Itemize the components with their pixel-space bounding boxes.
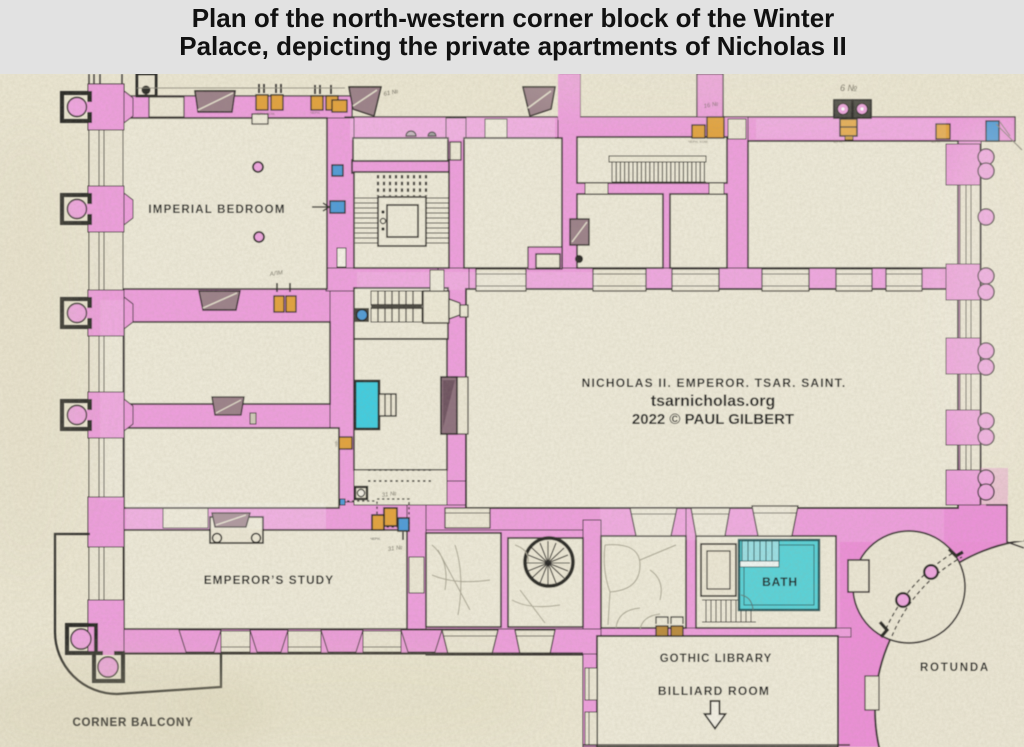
svg-text:Palace, depicting the private: Palace, depicting the private apartments…: [179, 31, 847, 61]
svg-text:Plan of the north-western corn: Plan of the north-western corner block o…: [192, 3, 835, 33]
